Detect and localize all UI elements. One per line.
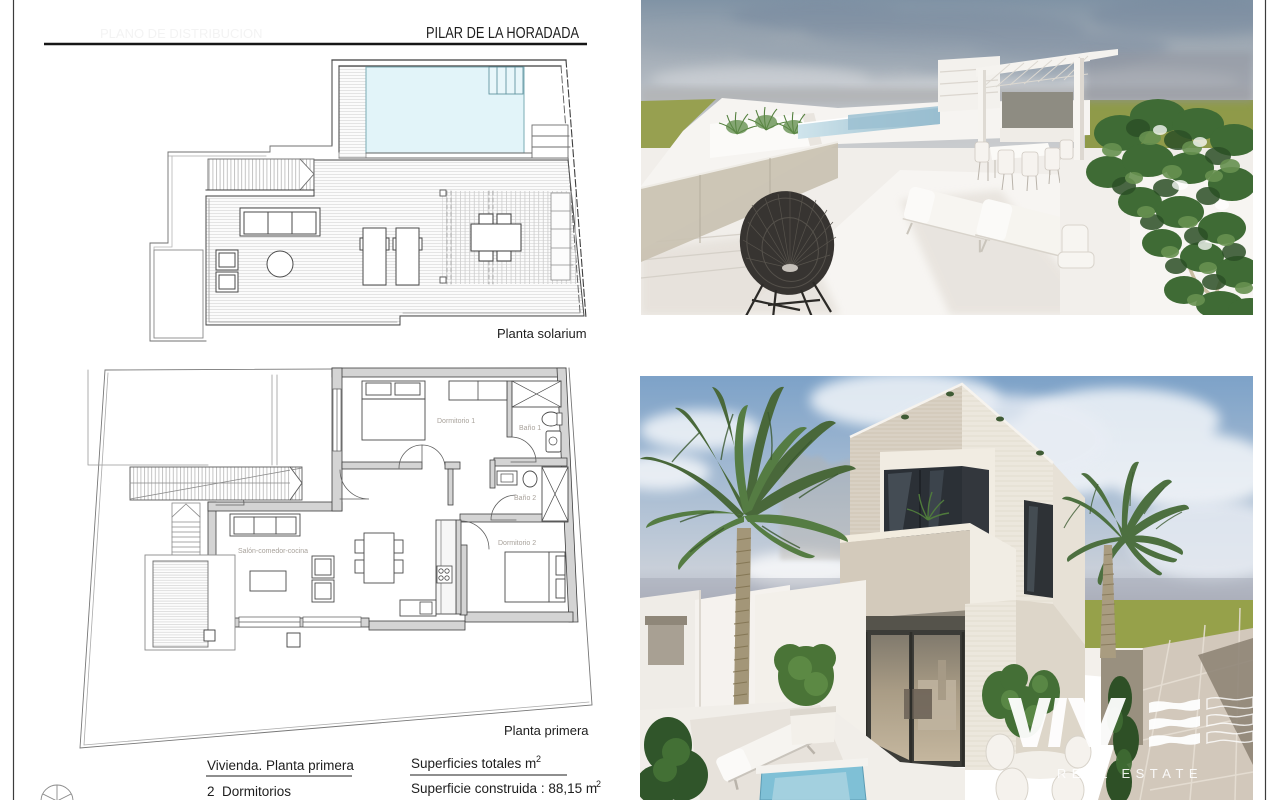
svg-text:Superficies totales m: Superficies totales m [411, 756, 536, 771]
svg-text:2: 2 [596, 779, 601, 789]
svg-text:REAL ESTATE: REAL ESTATE [1057, 766, 1203, 781]
svg-text:Baño 2: Baño 2 [514, 495, 536, 502]
svg-text:PLANO DE DISTRIBUCION: PLANO DE DISTRIBUCION [100, 26, 263, 41]
svg-text:PILAR DE LA HORADADA: PILAR DE LA HORADADA [426, 25, 580, 42]
svg-text:2: 2 [536, 754, 541, 764]
svg-text:Planta primera: Planta primera [504, 723, 589, 738]
svg-text:Baño 1: Baño 1 [519, 425, 541, 432]
svg-text:Dormitorio 1: Dormitorio 1 [437, 418, 475, 425]
svg-text:Planta solarium: Planta solarium [497, 326, 587, 341]
svg-text:2 Dormitorios: 2 Dormitorios [207, 784, 291, 799]
svg-text:Dormitorio 2: Dormitorio 2 [498, 540, 536, 547]
svg-text:Vivienda. Planta primera: Vivienda. Planta primera [207, 758, 354, 773]
svg-text:Salón-comedor-cocina: Salón-comedor-cocina [238, 548, 308, 555]
svg-text:Superficie construida : 88,15: Superficie construida : 88,15 m [411, 781, 597, 796]
